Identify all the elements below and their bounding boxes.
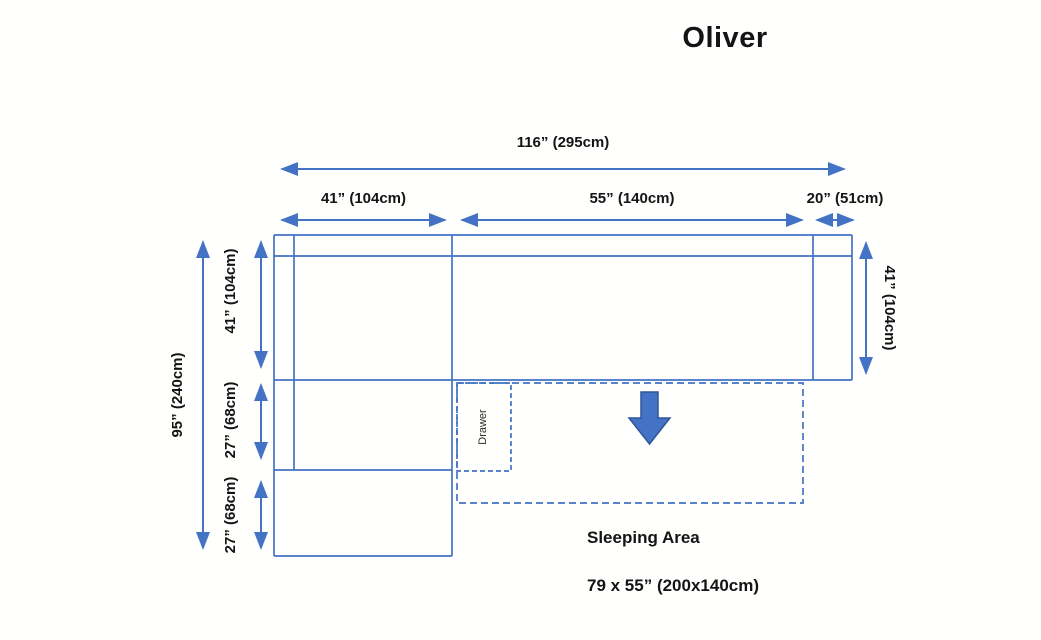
- sleeping-area-label: Sleeping Area: [587, 528, 700, 548]
- dim-label-lower-depth: 27” (68cm): [222, 455, 240, 575]
- dim-label-total-depth: 95” (240cm): [169, 335, 187, 455]
- dimension-arrows: [203, 169, 866, 548]
- dim-label-right-depth: 41” (104cm): [880, 248, 898, 368]
- down-arrow-icon: [629, 392, 670, 444]
- dim-label-arm-width: 20” (51cm): [795, 190, 895, 207]
- drawer-label: Drawer: [477, 392, 491, 462]
- dim-label-chaise-width: 41” (104cm): [277, 190, 450, 207]
- sleeping-area-outline: [457, 383, 803, 503]
- sofa-dimension-diagram: Oliver 116” (295cm) 41” (104cm) 55” (140…: [0, 0, 1041, 640]
- diagram-title: Oliver: [625, 22, 825, 55]
- sleeping-area-size: 79 x 55” (200x140cm): [587, 576, 759, 596]
- dim-label-seat-width: 55” (140cm): [457, 190, 807, 207]
- dim-label-upper-depth: 41” (104cm): [222, 231, 240, 351]
- sofa-outline: [274, 235, 852, 556]
- dim-label-total-width: 116” (295cm): [277, 134, 849, 151]
